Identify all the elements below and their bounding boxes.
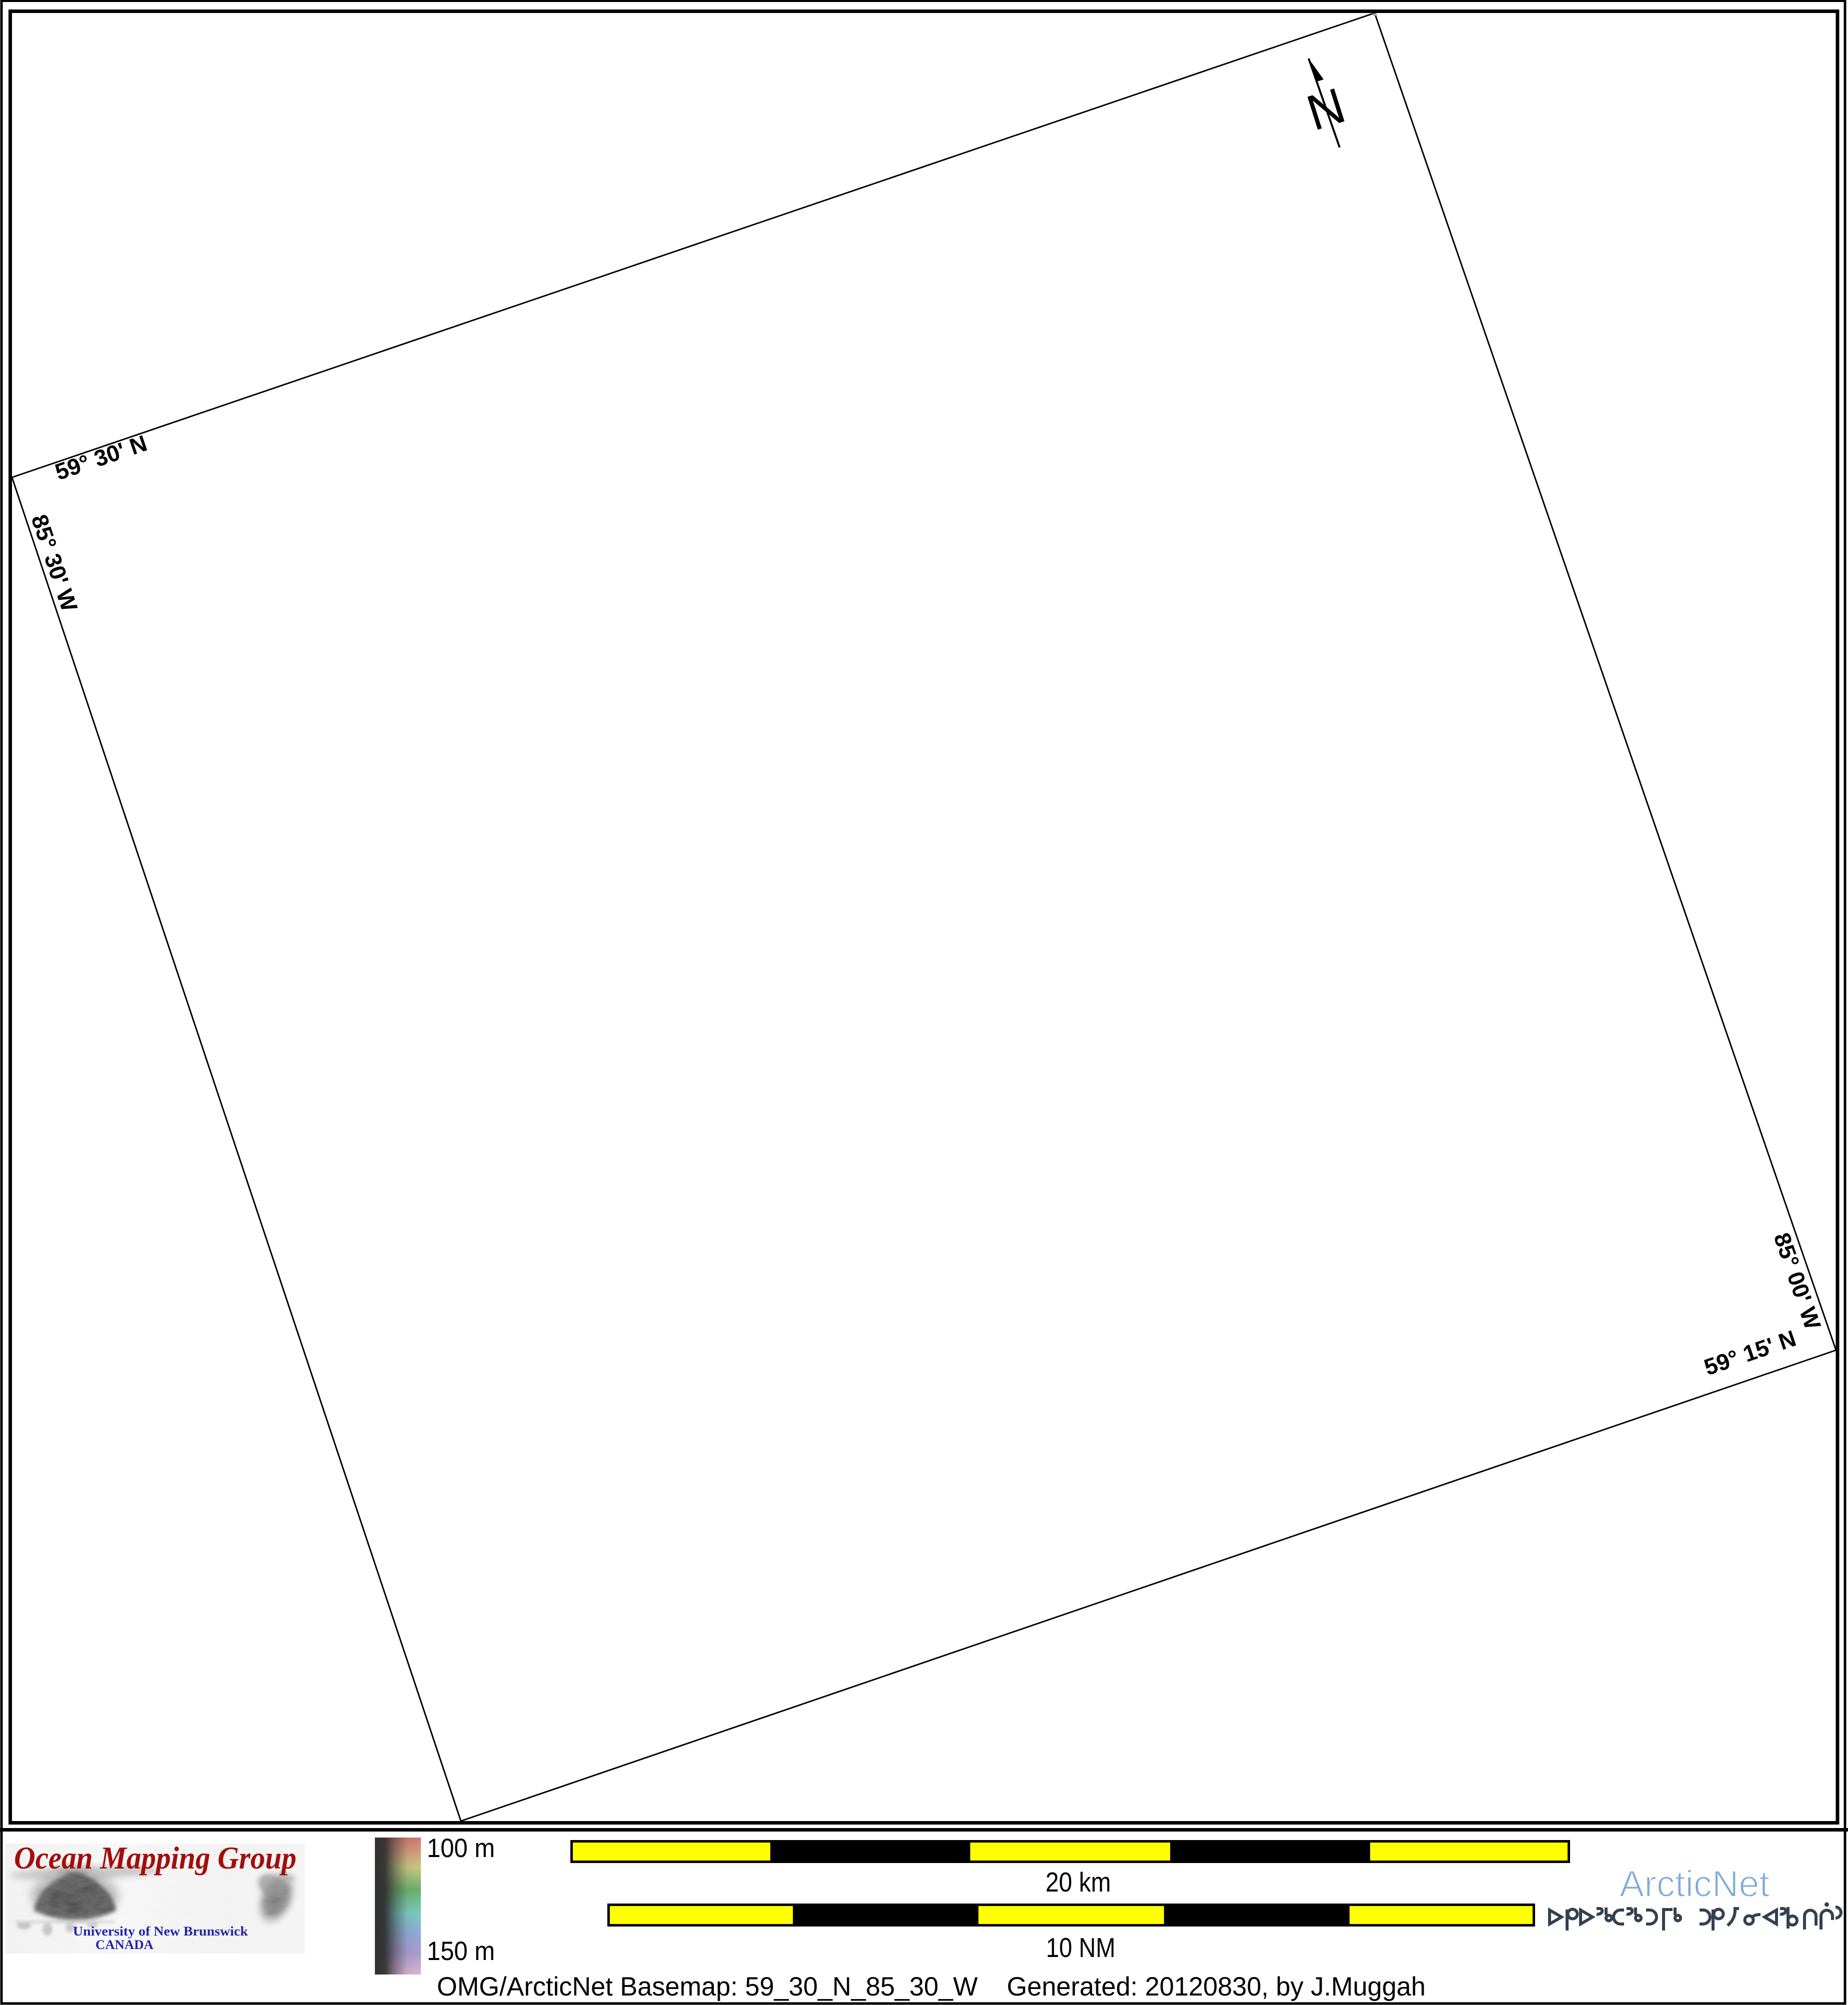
svg-text:University of New Brunswick: University of New Brunswick	[73, 1924, 248, 1939]
svg-text:Ocean Mapping Group: Ocean Mapping Group	[14, 1841, 296, 1876]
svg-text:10 NM: 10 NM	[1046, 1932, 1116, 1963]
svg-text:20 km: 20 km	[1046, 1867, 1111, 1898]
svg-text:100 m: 100 m	[427, 1834, 495, 1863]
svg-text:CANADA: CANADA	[95, 1938, 153, 1952]
svg-text:ArcticNet: ArcticNet	[1620, 1863, 1770, 1905]
svg-text:OMG/ArcticNet Basemap: 59_30_N: OMG/ArcticNet Basemap: 59_30_N_85_30_W G…	[437, 1972, 1426, 2002]
svg-text:150 m: 150 m	[427, 1937, 495, 1966]
